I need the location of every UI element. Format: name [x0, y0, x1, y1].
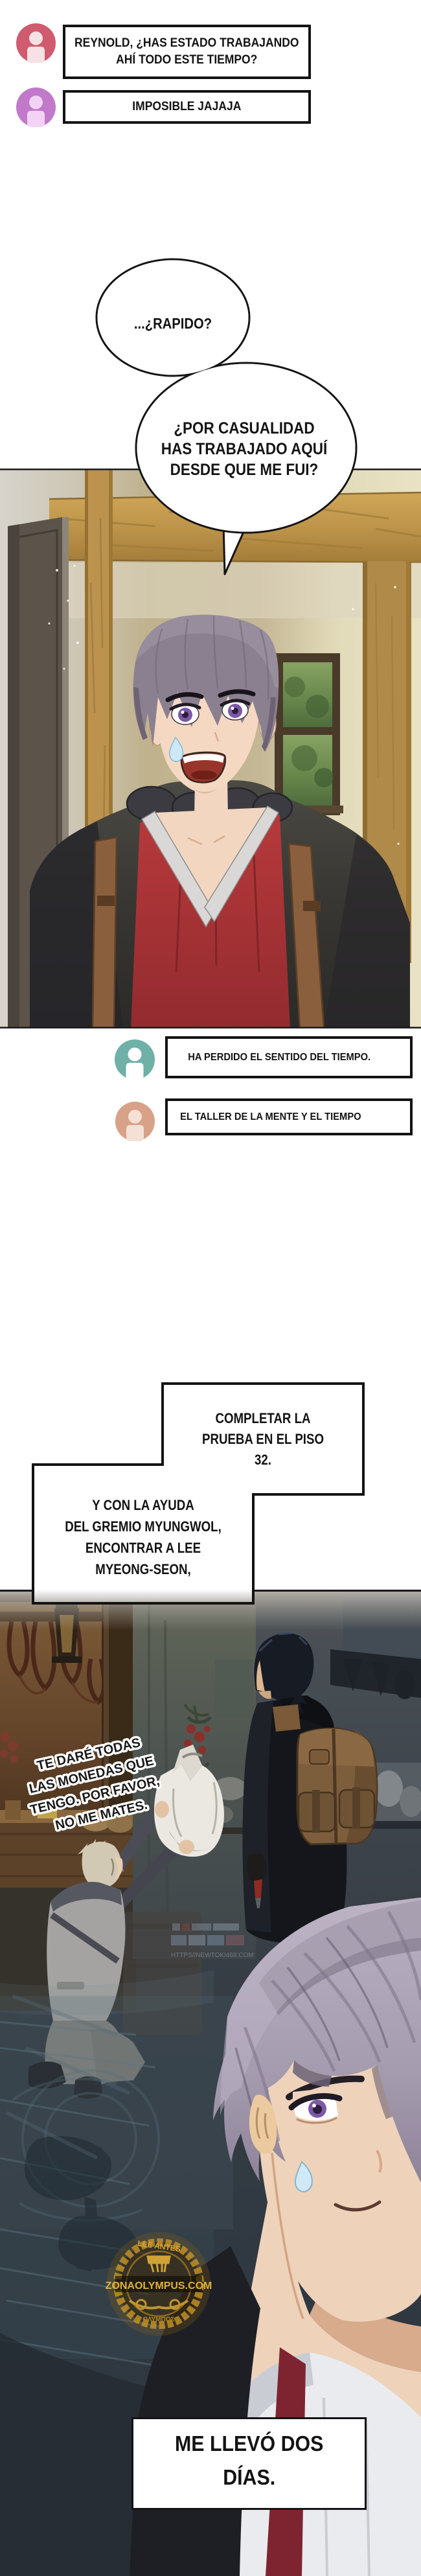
svg-text:32.: 32. [255, 1453, 271, 1468]
svg-text:¿POR CASUALIDAD: ¿POR CASUALIDAD [174, 419, 314, 437]
svg-text:...¿RAPIDO?: ...¿RAPIDO? [134, 315, 212, 332]
svg-text:Y CON LA AYUDA: Y CON LA AYUDA [92, 1498, 194, 1514]
svg-text:DESDE QUE ME FUI?: DESDE QUE ME FUI? [170, 461, 319, 479]
svg-text:PRUEBA EN EL PISO: PRUEBA EN EL PISO [202, 1432, 324, 1448]
svg-text:ΟΛΥΜΠΟΣ: ΟΛΥΜΠΟΣ [142, 2316, 174, 2323]
svg-text:HTTPS//NEWTOKI468.COM: HTTPS//NEWTOKI468.COM [171, 1952, 254, 1959]
svg-text:ZONAOLYMPUS.COM: ZONAOLYMPUS.COM [106, 2280, 212, 2292]
svg-text:COMPLETAR LA: COMPLETAR LA [215, 1411, 310, 1427]
svg-text:ENCONTRAR A LEE: ENCONTRAR A LEE [85, 1541, 201, 1557]
svg-text:HAS TRABAJADO AQUÍ: HAS TRABAJADO AQUÍ [161, 439, 328, 458]
svg-text:DEL GREMIO MYUNGWOL,: DEL GREMIO MYUNGWOL, [65, 1520, 222, 1535]
svg-text:MYEONG-SEON,: MYEONG-SEON, [95, 1562, 190, 1578]
